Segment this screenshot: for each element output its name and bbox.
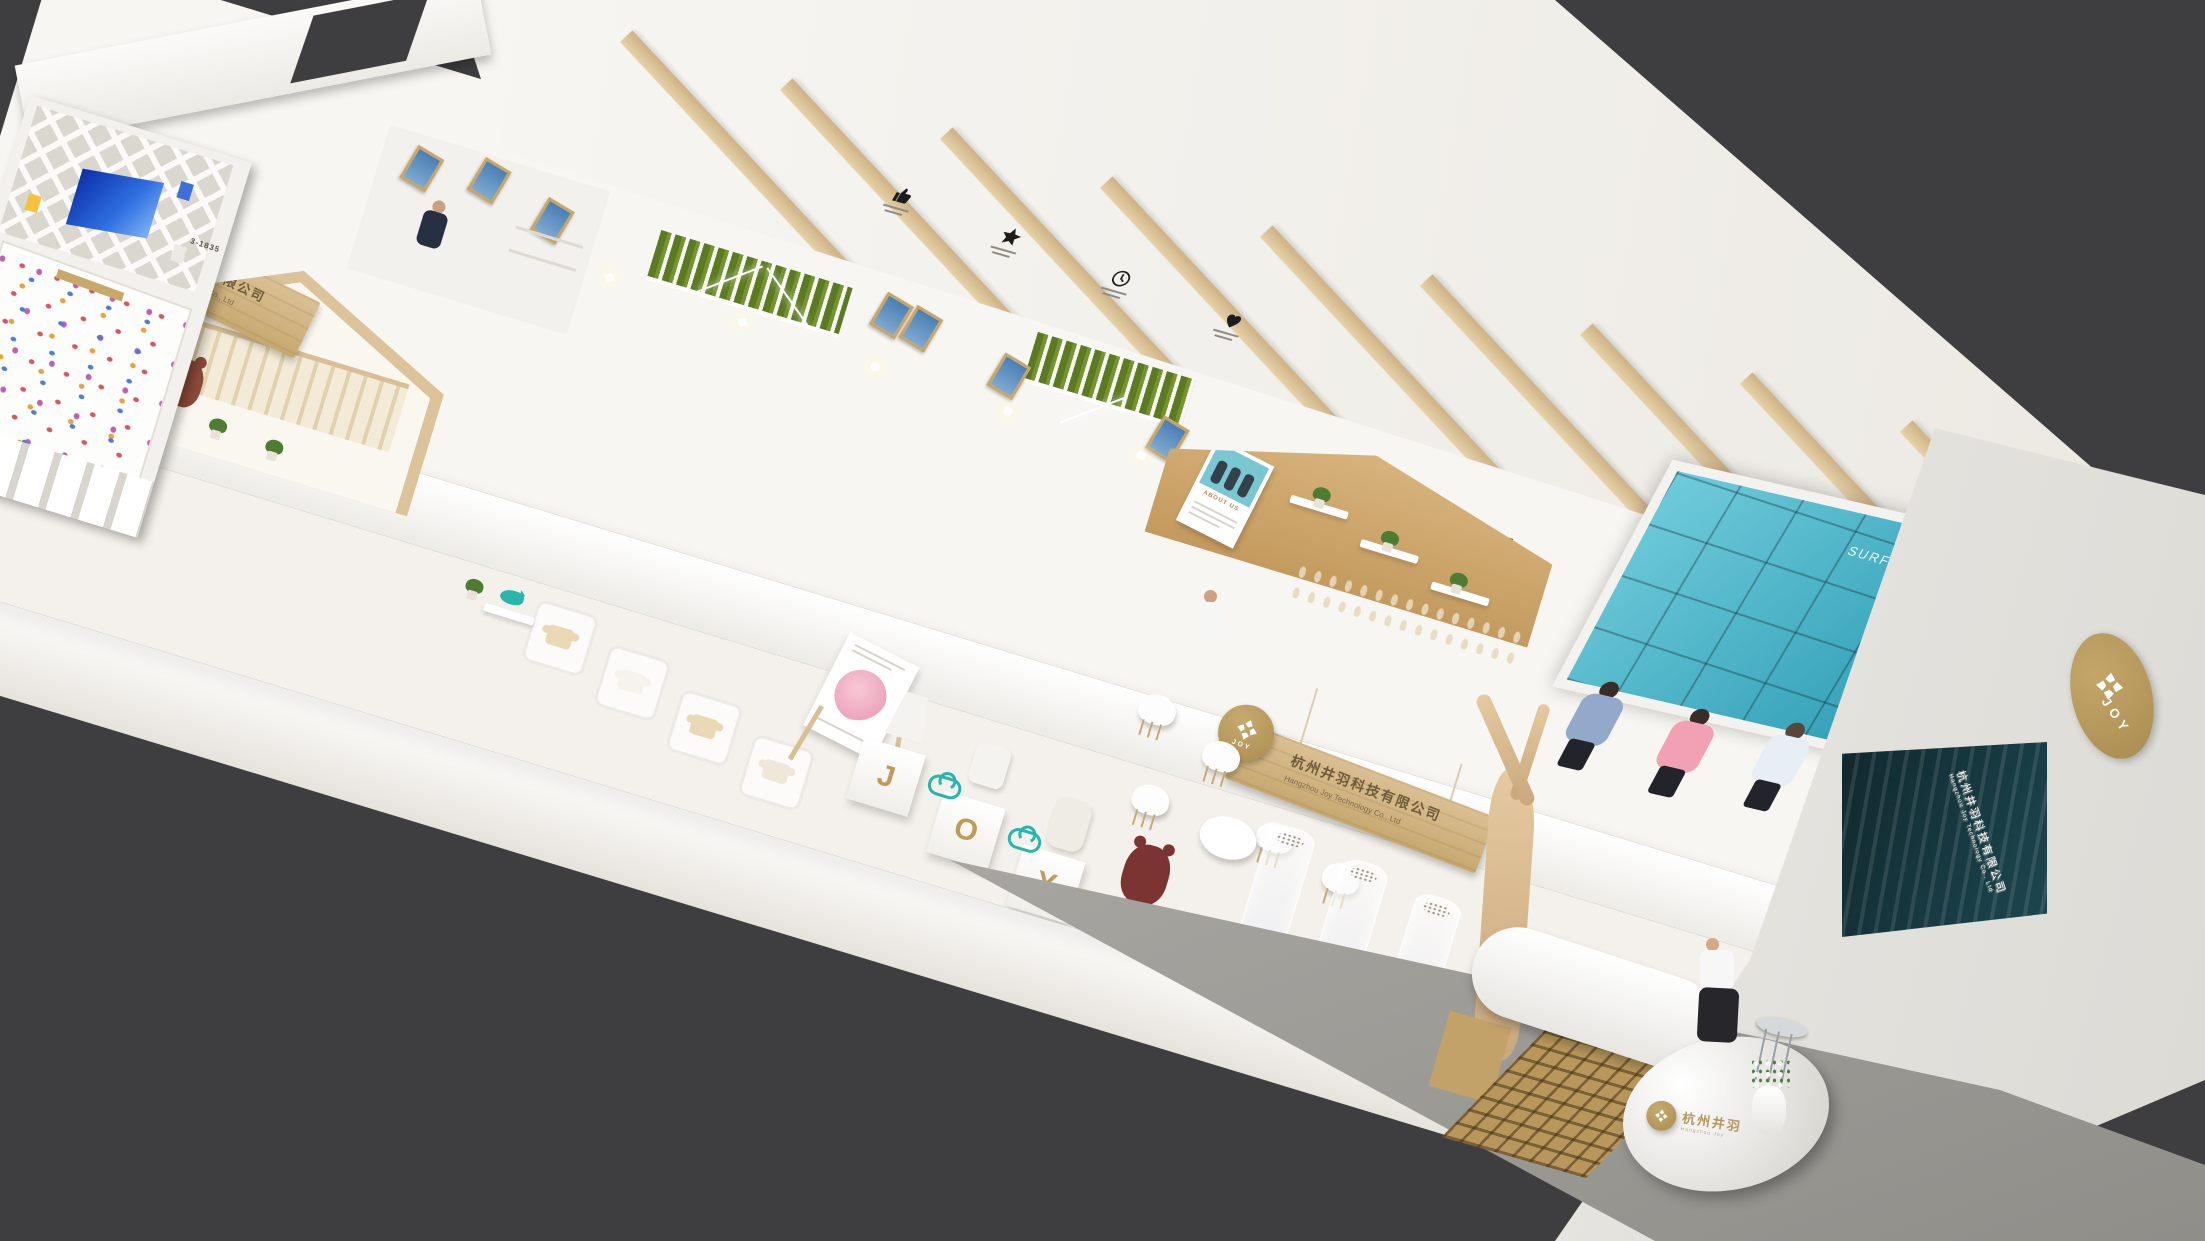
kids-shirt — [760, 758, 791, 785]
kids-portrait-frame — [399, 145, 444, 193]
flower-bouquet — [1750, 1058, 1790, 1088]
facade-led-screen — [66, 169, 164, 239]
joy-logo-disc — [1644, 1099, 1678, 1133]
brand-wall-header — [56, 269, 125, 302]
watercolor-artwork — [826, 661, 896, 731]
pinwheel-logo-icon — [1652, 1107, 1670, 1125]
plinth-letter: J — [873, 758, 899, 795]
about-us-poster: ABOUT US — [1176, 438, 1275, 549]
potted-plant — [1311, 485, 1332, 504]
booth-render-scene: ABOUT US 杭州井羽科技有限公司 Hangzhou Joy Techno — [0, 0, 2205, 1241]
kids-shirt — [616, 669, 647, 696]
kids-shirt — [688, 713, 719, 740]
flower-vase — [1752, 1086, 1786, 1136]
person-body — [415, 208, 449, 250]
potted-plant — [1380, 529, 1401, 548]
person-body — [1198, 602, 1224, 636]
kids-portrait-frame — [466, 157, 511, 205]
person-skirt — [1697, 987, 1740, 1043]
kids-shirt — [544, 624, 575, 651]
color-chip — [170, 244, 187, 264]
color-chip — [176, 181, 193, 201]
plinth-letter: O — [950, 811, 982, 850]
wall-shelf — [508, 249, 576, 272]
color-chip — [24, 193, 41, 213]
potted-plant — [1448, 571, 1469, 590]
person-torso — [1700, 950, 1734, 990]
